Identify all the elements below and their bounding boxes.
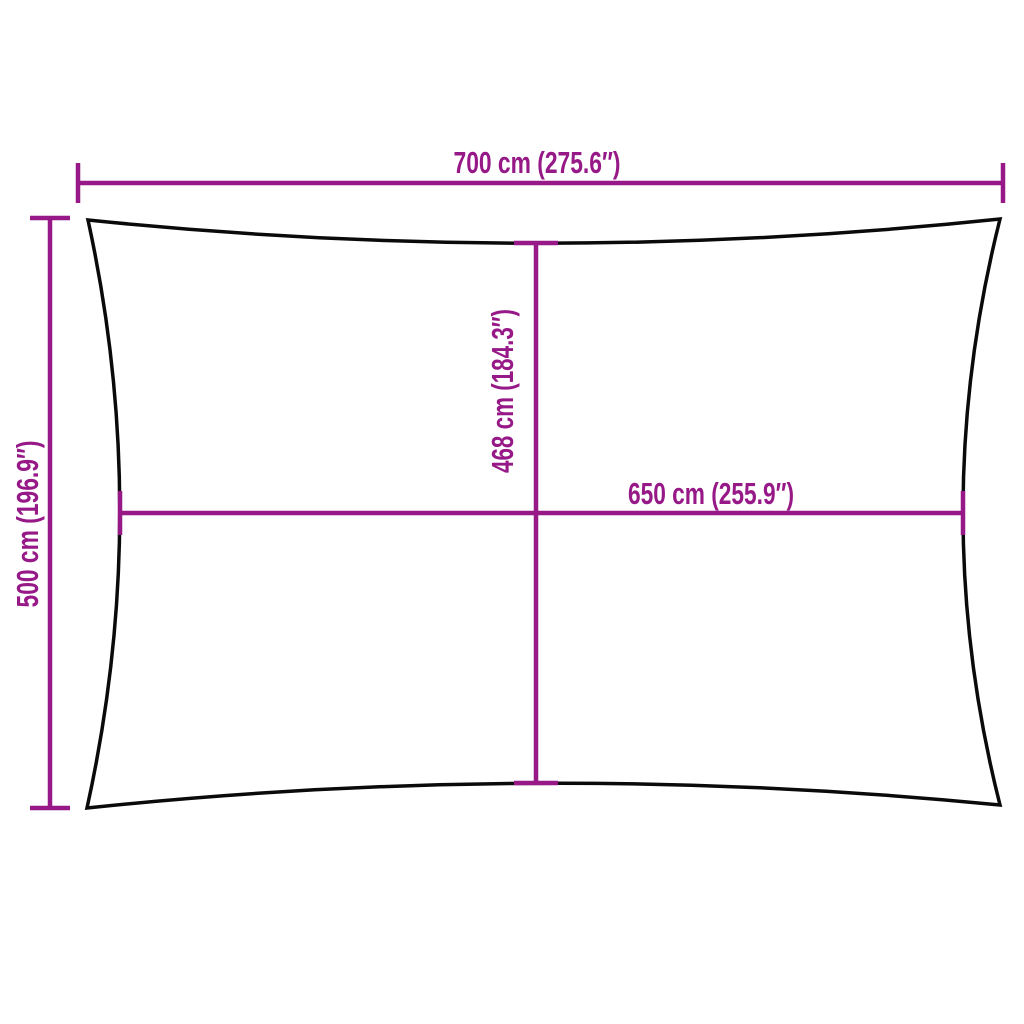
dimension-labels: 700 cm (275.6″) 500 cm (196.9″) 468 cm (… <box>10 145 794 608</box>
label-left-height: 500 cm (196.9″) <box>10 441 45 608</box>
dimension-line-inner-width <box>120 491 963 535</box>
label-top-width: 700 cm (275.6″) <box>454 145 621 180</box>
product-dimension-diagram: 700 cm (275.6″) 500 cm (196.9″) 468 cm (… <box>0 0 1024 1024</box>
dimension-lines <box>30 163 1003 808</box>
label-inner-width: 650 cm (255.9″) <box>628 476 794 511</box>
label-inner-height: 468 cm (184.3″) <box>485 309 520 473</box>
dimension-diagram-canvas: 700 cm (275.6″) 500 cm (196.9″) 468 cm (… <box>0 0 1024 1024</box>
